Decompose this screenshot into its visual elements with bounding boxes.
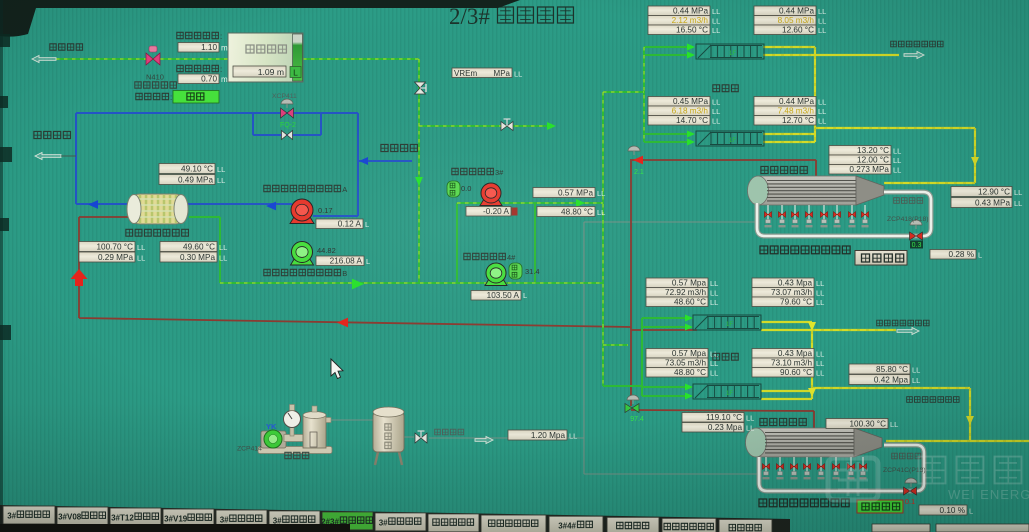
svg-text:LL: LL <box>137 254 145 263</box>
svg-text:LL: LL <box>893 147 901 156</box>
svg-text:0.273 MPa: 0.273 MPa <box>849 165 889 174</box>
svg-text:LL: LL <box>818 117 826 126</box>
svg-text:m: m <box>221 75 228 84</box>
svg-text:LL: LL <box>137 243 145 252</box>
svg-text:MPa: MPa <box>494 69 511 78</box>
svg-text:LL: LL <box>712 117 720 126</box>
svg-text:LL: LL <box>217 165 225 174</box>
svg-text:LL: LL <box>712 26 720 35</box>
svg-text:2.12 m3/h: 2.12 m3/h <box>672 16 709 25</box>
svg-text:0.29 MPa: 0.29 MPa <box>98 253 133 262</box>
svg-text:LL: LL <box>818 26 826 35</box>
svg-text:LL: LL <box>818 17 826 26</box>
svg-text:1F: 1F <box>726 322 733 328</box>
svg-text:L: L <box>365 220 369 229</box>
svg-text:0.0: 0.0 <box>461 184 471 193</box>
svg-text:79.60 °C: 79.60 °C <box>780 298 812 307</box>
svg-text:48.80 °C: 48.80 °C <box>674 368 706 377</box>
svg-text:LL: LL <box>712 17 720 26</box>
svg-text:LL: LL <box>597 208 605 217</box>
svg-text:12.90 °C: 12.90 °C <box>978 188 1010 197</box>
svg-text:0.44 MPa: 0.44 MPa <box>779 7 814 16</box>
svg-text:0.3: 0.3 <box>912 242 922 249</box>
svg-text:LL: LL <box>217 176 225 185</box>
svg-text:LL: LL <box>710 289 718 298</box>
svg-text:48.80 °C: 48.80 °C <box>561 208 593 217</box>
svg-text:216.08 A: 216.08 A <box>330 257 363 266</box>
svg-text:73.05 m3/h: 73.05 m3/h <box>665 359 706 368</box>
svg-text:L: L <box>293 68 298 78</box>
svg-text:LL: LL <box>712 98 720 107</box>
svg-text:0.70: 0.70 <box>201 75 217 84</box>
svg-text:49.10 °C: 49.10 °C <box>181 165 213 174</box>
svg-text:12.70 °C: 12.70 °C <box>782 116 814 125</box>
svg-text:L: L <box>523 291 527 300</box>
svg-text:ZCP418(P18): ZCP418(P18) <box>887 216 929 223</box>
svg-text:49.60 °C: 49.60 °C <box>183 243 215 252</box>
svg-text:1.10: 1.10 <box>201 43 217 52</box>
svg-text:A: A <box>342 185 347 194</box>
svg-text:LL: LL <box>912 376 920 385</box>
svg-text:0.57 Mpa: 0.57 Mpa <box>672 279 707 288</box>
svg-text:73.10 m3/h: 73.10 m3/h <box>771 359 812 368</box>
svg-text:0.49 MPa: 0.49 MPa <box>178 176 213 185</box>
svg-text:0.44 MPa: 0.44 MPa <box>779 97 814 106</box>
svg-text:16.50 °C: 16.50 °C <box>676 26 708 35</box>
svg-text:LL: LL <box>816 359 824 368</box>
svg-text:72.92 m3/h: 72.92 m3/h <box>665 288 706 297</box>
svg-text::: : <box>220 32 222 41</box>
svg-text:0.44 MPa: 0.44 MPa <box>673 7 708 16</box>
svg-text:LL: LL <box>219 243 227 252</box>
svg-text:2.1: 2.1 <box>634 169 644 176</box>
svg-text:XCP411: XCP411 <box>272 93 297 100</box>
svg-text:LL: LL <box>712 7 720 16</box>
svg-text:LL: LL <box>816 369 824 378</box>
svg-text:LL: LL <box>1014 199 1022 208</box>
svg-text::: : <box>220 65 222 74</box>
svg-text:LL: LL <box>893 156 901 165</box>
svg-text:LL: LL <box>597 189 605 198</box>
svg-text:1F: 1F <box>729 51 736 57</box>
svg-text:8.05 m3/h: 8.05 m3/h <box>778 16 815 25</box>
svg-text:1F: 1F <box>729 138 736 144</box>
svg-text:LL: LL <box>816 350 824 359</box>
svg-text:-0.20 A: -0.20 A <box>483 207 509 216</box>
svg-text:LL: LL <box>818 98 826 107</box>
svg-text:LL: LL <box>710 298 718 307</box>
svg-text:0.43 Mpa: 0.43 Mpa <box>778 349 813 358</box>
svg-text:0.43 Mpa: 0.43 Mpa <box>778 279 813 288</box>
svg-text:7.48 m3/h: 7.48 m3/h <box>778 107 815 116</box>
svg-text:FQ-2: FQ-2 <box>280 122 296 129</box>
svg-text:N410: N410 <box>146 73 164 82</box>
svg-text:LL: LL <box>1014 188 1022 197</box>
svg-text:LL: LL <box>710 369 718 378</box>
svg-text:0.12 A: 0.12 A <box>338 220 362 229</box>
svg-text:L: L <box>978 251 982 260</box>
svg-text:6.18 m3/h: 6.18 m3/h <box>672 107 709 116</box>
svg-text:LL: LL <box>816 279 824 288</box>
svg-text:4#: 4# <box>507 253 516 262</box>
svg-text:LL: LL <box>816 289 824 298</box>
svg-text:44.82: 44.82 <box>317 246 336 255</box>
svg-text:1F: 1F <box>726 391 733 397</box>
svg-text:LL: LL <box>818 7 826 16</box>
svg-text:31.4: 31.4 <box>525 267 540 276</box>
svg-text:0.30 MPa: 0.30 MPa <box>180 253 215 262</box>
svg-text:0.45 MPa: 0.45 MPa <box>673 97 708 106</box>
svg-text:LL: LL <box>893 166 901 175</box>
svg-text:LL: LL <box>816 298 824 307</box>
svg-text::: : <box>170 93 172 102</box>
svg-text:0.57 Mpa: 0.57 Mpa <box>672 349 707 358</box>
svg-text:73.07 m3/h: 73.07 m3/h <box>771 288 812 297</box>
svg-text:LL: LL <box>912 366 920 375</box>
svg-text:LL: LL <box>818 107 826 116</box>
svg-text:3#: 3# <box>495 168 504 177</box>
svg-text:12.00 °C: 12.00 °C <box>857 156 889 165</box>
svg-text:0.28 %: 0.28 % <box>949 250 975 259</box>
svg-text:85.80 °C: 85.80 °C <box>876 365 908 374</box>
svg-text:48.60 °C: 48.60 °C <box>674 298 706 307</box>
svg-text:0.42 Mpa: 0.42 Mpa <box>874 376 909 385</box>
svg-text:100.70 °C: 100.70 °C <box>96 243 133 252</box>
svg-text:1.09 m: 1.09 m <box>258 67 284 77</box>
svg-text:0.43 MPa: 0.43 MPa <box>975 199 1010 208</box>
svg-text:B: B <box>342 269 347 278</box>
svg-text:m: m <box>221 44 228 53</box>
svg-text:0.57 MPa: 0.57 MPa <box>558 189 593 198</box>
svg-text:LL: LL <box>712 107 720 116</box>
svg-text:LL: LL <box>219 254 227 263</box>
svg-text:LL: LL <box>710 279 718 288</box>
svg-text:103.50 A: 103.50 A <box>487 291 520 300</box>
svg-text:L: L <box>366 257 370 266</box>
svg-text:12.60 °C: 12.60 °C <box>782 26 814 35</box>
svg-text:0.17: 0.17 <box>318 206 333 215</box>
svg-text:13.20 °C: 13.20 °C <box>857 146 889 155</box>
svg-text:90.60 °C: 90.60 °C <box>780 368 812 377</box>
svg-text:LL: LL <box>514 70 522 79</box>
svg-text:14.70 °C: 14.70 °C <box>676 116 708 125</box>
svg-text:VREm: VREm <box>454 69 477 78</box>
